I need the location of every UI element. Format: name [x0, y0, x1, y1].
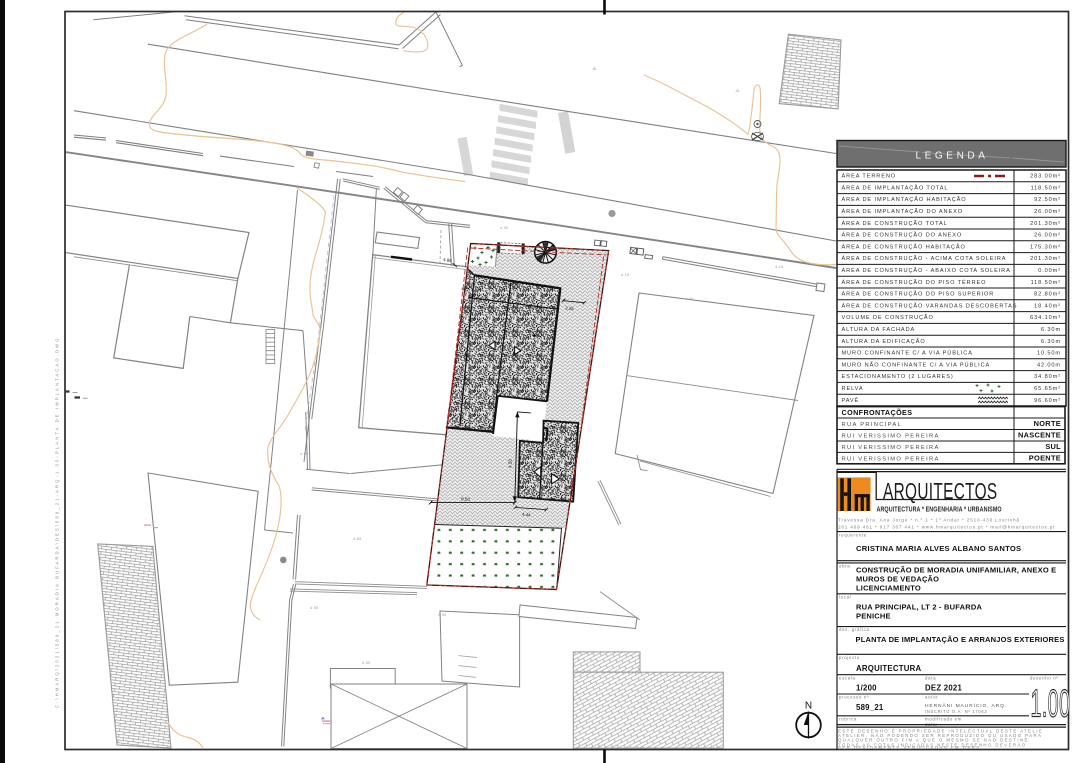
svg-text:26.00m²: 26.00m² — [1034, 233, 1061, 239]
svg-text:C:\HMARQ\2021\589_21 MORADIA B: C:\HMARQ\2021\589_21 MORADIA BUFARDA\DES… — [55, 337, 60, 708]
svg-text:ÁREA DE IMPLANTAÇÃO DO ANEXO: ÁREA DE IMPLANTAÇÃO DO ANEXO — [842, 208, 963, 215]
svg-text:201.30m²: 201.30m² — [1030, 221, 1061, 227]
svg-text:obra: obra — [839, 563, 850, 568]
svg-text:ÁREA DE CONSTRUÇÃO TOTAL: ÁREA DE CONSTRUÇÃO TOTAL — [842, 220, 948, 227]
svg-text:ÁREA DE CONSTRUÇÃO DO PISO SUP: ÁREA DE CONSTRUÇÃO DO PISO SUPERIOR — [842, 291, 995, 298]
svg-text:ÁREA DE CONSTRUÇÃO - ACIMA COT: ÁREA DE CONSTRUÇÃO - ACIMA COTA SOLEIRA — [842, 255, 1007, 262]
svg-text:65.65m²: 65.65m² — [1034, 386, 1061, 392]
svg-text:4.50: 4.50 — [508, 458, 513, 468]
svg-text:N: N — [805, 701, 812, 712]
svg-text:ÁREA DE IMPLANTAÇÃO TOTAL: ÁREA DE IMPLANTAÇÃO TOTAL — [842, 184, 949, 191]
svg-text:4.50: 4.50 — [438, 613, 447, 617]
svg-text:INSCRITO O.A. Nº 17062: INSCRITO O.A. Nº 17062 — [925, 709, 987, 714]
svg-text:NORTE: NORTE — [1034, 419, 1061, 428]
svg-text:283.00m²: 283.00m² — [1030, 174, 1061, 180]
svg-text:PLANTA DE IMPLANTAÇÃO E ARRANJ: PLANTA DE IMPLANTAÇÃO E ARRANJOS EXTERIO… — [856, 635, 1065, 644]
svg-text:ARQUITECTURA * ENGENHARIA * UR: ARQUITECTURA * ENGENHARIA * URBANISMO — [877, 506, 1002, 514]
svg-text:18.40m²: 18.40m² — [1034, 303, 1061, 309]
svg-text:RUI VERISSIMO PEREIRA: RUI VERISSIMO PEREIRA — [842, 457, 940, 463]
svg-text:589_21: 589_21 — [856, 703, 884, 712]
svg-text:RUA PRINCIPAL: RUA PRINCIPAL — [842, 422, 903, 428]
svg-text:ÁREA TERRENO: ÁREA TERRENO — [842, 173, 897, 180]
svg-text:6.30m: 6.30m — [1041, 327, 1061, 333]
svg-text:RELVA: RELVA — [842, 386, 864, 392]
svg-text:4.10: 4.10 — [775, 265, 784, 269]
svg-text:autor: autor — [925, 695, 938, 700]
svg-text:175.30m²: 175.30m² — [1030, 244, 1061, 250]
svg-text:0.00m²: 0.00m² — [1038, 268, 1061, 274]
svg-text:PAVÊ: PAVÊ — [842, 396, 860, 404]
svg-text:201.30m²: 201.30m² — [1030, 256, 1061, 262]
svg-text:projecto: projecto — [839, 655, 860, 660]
svg-text:ÁREA DE IMPLANTAÇÃO HABITAÇÃO: ÁREA DE IMPLANTAÇÃO HABITAÇÃO — [842, 196, 967, 203]
svg-text:requerente: requerente — [839, 533, 867, 538]
svg-text:ESTACIONAMENTO (2 LUGARES): ESTACIONAMENTO (2 LUGARES) — [842, 374, 954, 380]
svg-text:4.55: 4.55 — [310, 606, 319, 610]
svg-text:26.00m²: 26.00m² — [1034, 209, 1061, 215]
svg-text:escala: escala — [839, 675, 856, 680]
svg-text:96.60m²: 96.60m² — [1034, 398, 1061, 404]
svg-text:634.10m³: 634.10m³ — [1030, 315, 1061, 321]
svg-text:VOLUME DE CONSTRUÇÃO: VOLUME DE CONSTRUÇÃO — [842, 314, 934, 321]
svg-text:CRISTINA MARIA ALVES ALBANO SA: CRISTINA MARIA ALVES ALBANO SANTOS — [856, 544, 1021, 553]
svg-text:ALTURA DA EDIFICAÇÃO: ALTURA DA EDIFICAÇÃO — [842, 338, 926, 345]
svg-text:8.50: 8.50 — [461, 496, 471, 501]
svg-text:ÁREA DE CONSTRUÇÃO - ABAIXO CO: ÁREA DE CONSTRUÇÃO - ABAIXO COTA SOLEIRA — [842, 267, 1011, 274]
svg-text:4.30: 4.30 — [500, 226, 509, 230]
svg-text:6.30m: 6.30m — [1041, 339, 1061, 345]
svg-text:ÁREA DE CONSTRUÇÃO DO PISO TÉR: ÁREA DE CONSTRUÇÃO DO PISO TÉRREO — [842, 279, 987, 286]
svg-text:des. gráfica: des. gráfica — [839, 627, 870, 632]
svg-text:data: data — [925, 675, 936, 680]
svg-text:4.65: 4.65 — [353, 537, 362, 541]
svg-text:modificado em: modificado em — [925, 716, 962, 721]
svg-text:118.50m²: 118.50m² — [1031, 185, 1061, 191]
svg-text:RUI VERISSIMO PEREIRA: RUI VERISSIMO PEREIRA — [842, 434, 940, 440]
svg-text:SER DEVIDAMENTE VERIFICADAS EM: SER DEVIDAMENTE VERIFICADAS EM OBRA — [838, 745, 981, 750]
svg-text:RUI VERISSIMO PEREIRA: RUI VERISSIMO PEREIRA — [842, 445, 940, 451]
svg-text:4.44: 4.44 — [522, 512, 531, 518]
svg-text:4.20: 4.20 — [685, 297, 694, 301]
svg-text:RUA PRINCIPAL, LT 2 - BUFARDA: RUA PRINCIPAL, LT 2 - BUFARDA — [856, 602, 982, 611]
svg-text:ÁREA DE CONSTRUÇÃO HABITAÇÃO: ÁREA DE CONSTRUÇÃO HABITAÇÃO — [842, 243, 966, 250]
svg-text:1.00: 1.00 — [1031, 681, 1071, 725]
svg-text:1/200: 1/200 — [856, 683, 877, 692]
svg-text:desenho nº: desenho nº — [1030, 675, 1059, 680]
svg-text:ÁREA DE CONSTRUÇÃO DO ANEXO: ÁREA DE CONSTRUÇÃO DO ANEXO — [842, 232, 963, 239]
svg-text:LICENCIAMENTO: LICENCIAMENTO — [856, 583, 921, 592]
svg-text:34.80m²: 34.80m² — [1034, 374, 1061, 380]
svg-text:261 469 481 * 917 367 441 * ww: 261 469 481 * 917 367 441 * www.hmarquit… — [838, 525, 1055, 530]
svg-text:DEZ 2021: DEZ 2021 — [925, 683, 963, 692]
svg-text:MURO NÃO CONFINANTE C/ A VIA P: MURO NÃO CONFINANTE C/ A VIA PÚBLICA — [842, 361, 991, 368]
svg-text:SUL: SUL — [1045, 442, 1061, 451]
svg-text:4.60: 4.60 — [300, 452, 309, 456]
svg-text:NASCENTE: NASCENTE — [1018, 431, 1061, 440]
svg-text:Travessa Dra. Ana Jorge * n.º: Travessa Dra. Ana Jorge * n.º 1 * 1º And… — [838, 518, 1020, 523]
svg-text:82.80m²: 82.80m² — [1034, 292, 1061, 298]
svg-text:POENTE: POENTE — [1029, 454, 1061, 463]
svg-text:ÁREA DE CONSTRUÇÃO VARANDAS DE: ÁREA DE CONSTRUÇÃO VARANDAS DESCOBERTAS — [842, 302, 1018, 309]
svg-text:118.50m²: 118.50m² — [1031, 280, 1061, 286]
svg-text:MURO CONFINANTE C/ A VIA PÚBLI: MURO CONFINANTE C/ A VIA PÚBLICA — [842, 350, 973, 357]
svg-text:local: local — [839, 594, 851, 599]
svg-text:CONFRONTAÇÕES: CONFRONTAÇÕES — [842, 408, 913, 417]
svg-text:LEGENDA: LEGENDA — [916, 151, 989, 162]
svg-text:92.50m²: 92.50m² — [1034, 197, 1061, 203]
svg-text:PENICHE: PENICHE — [856, 611, 891, 620]
svg-text:ALTURA DA FACHADA: ALTURA DA FACHADA — [842, 327, 916, 333]
svg-text:ARQUITECTURA: ARQUITECTURA — [856, 664, 921, 673]
svg-text:4.50: 4.50 — [362, 661, 371, 665]
svg-text:rubrica: rubrica — [839, 716, 857, 721]
svg-text:10.50m: 10.50m — [1037, 351, 1061, 357]
svg-text:42.00m: 42.00m — [1037, 362, 1061, 368]
svg-text:4.15: 4.15 — [621, 273, 630, 277]
svg-text:CONSTRUÇÃO DE MORADIA UNIFAMIL: CONSTRUÇÃO DE MORADIA UNIFAMILIAR, ANEXO… — [856, 565, 1056, 574]
svg-text:processo nº: processo nº — [839, 695, 869, 700]
svg-text:ARQUITECTOS: ARQUITECTOS — [883, 479, 997, 505]
svg-text:MUROS DE VEDAÇÃO: MUROS DE VEDAÇÃO — [856, 574, 939, 583]
svg-text:3.28: 3.28 — [565, 306, 575, 312]
